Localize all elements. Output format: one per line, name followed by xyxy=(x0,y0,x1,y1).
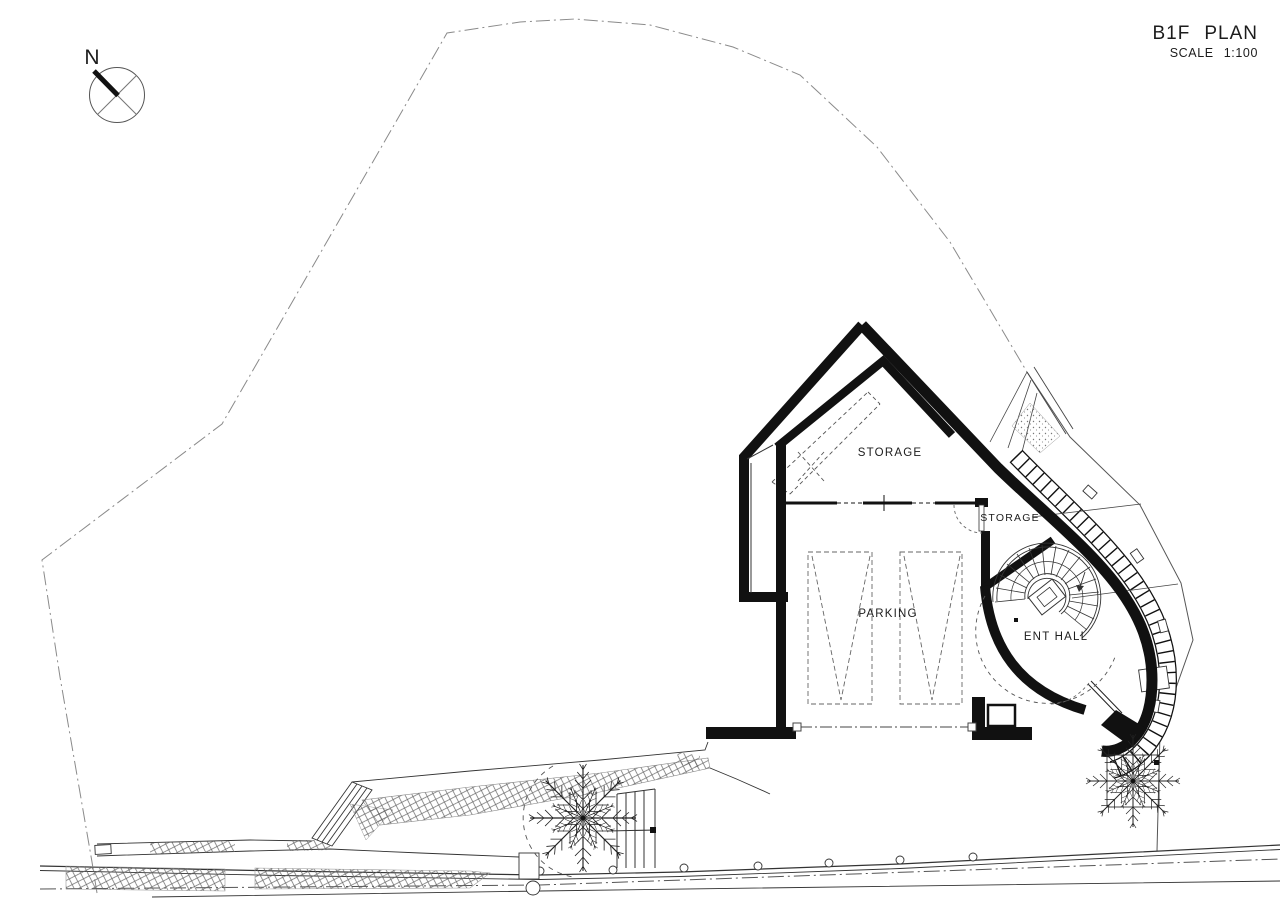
parking-bay-2 xyxy=(900,552,962,704)
path-landing xyxy=(519,853,539,879)
path-start-marker xyxy=(95,845,111,855)
wall-west-annex xyxy=(744,325,862,597)
footpath-hatch-1 xyxy=(150,841,235,854)
scale-label: SCALE xyxy=(1170,46,1214,60)
stair-direction-dot xyxy=(650,827,656,833)
landscape-southwest xyxy=(66,742,770,891)
stair-arrow-head xyxy=(1076,585,1084,592)
building xyxy=(706,325,1152,751)
scale-value: 1:100 xyxy=(1224,46,1258,60)
north-label: N xyxy=(84,46,99,69)
parking-bay-1 xyxy=(808,552,872,704)
retaining-tail-curve xyxy=(710,768,770,794)
wall-inner-chevron xyxy=(777,361,952,447)
road xyxy=(40,845,1280,897)
tree-icon xyxy=(1086,734,1180,828)
sheet-title-plan: PLAN xyxy=(1204,23,1258,44)
planter-tick xyxy=(1154,760,1159,765)
parking-label: PARKING xyxy=(858,608,917,620)
road-hatch-2 xyxy=(255,868,490,889)
tree-planter-east xyxy=(1086,734,1180,828)
north-needle xyxy=(94,71,118,96)
title-block: B1FPLAN SCALE1:100 xyxy=(1153,23,1259,60)
service-duct-box xyxy=(988,705,1015,726)
road-hatch-1 xyxy=(66,866,225,891)
exterior-stairs xyxy=(608,789,656,868)
floor-plan-drawing: STORAGE STORAGE PARKING ENT HALL N B1FPL… xyxy=(0,0,1280,904)
storage-main-label: STORAGE xyxy=(858,447,922,459)
closet-door-swing xyxy=(954,505,982,533)
manhole-large xyxy=(526,881,540,895)
wall-interior-horizontal xyxy=(786,495,983,511)
parking-bays xyxy=(808,552,962,704)
floor-plan-sheet: STORAGE STORAGE PARKING ENT HALL N B1FPL… xyxy=(0,0,1280,904)
retaining-hatch-band xyxy=(362,758,710,825)
stair-direction-line xyxy=(608,830,656,831)
garage-opening xyxy=(793,723,976,731)
sheet-title: B1FPLAN xyxy=(1153,23,1259,44)
north-arrow-icon: N xyxy=(84,46,144,123)
wall-south-west-bar xyxy=(706,727,796,739)
sheet-scale: SCALE1:100 xyxy=(1170,46,1258,60)
ent-hall-label: ENT HALL xyxy=(1024,631,1088,643)
stair-ref-dot xyxy=(1014,618,1018,622)
spiral-staircase xyxy=(993,543,1101,638)
storage-small-label: STORAGE xyxy=(980,512,1040,524)
wall-southeast-service xyxy=(972,697,1032,740)
stair-core xyxy=(1028,579,1065,615)
sheet-title-floor: B1F xyxy=(1153,23,1191,44)
room-labels: STORAGE STORAGE PARKING ENT HALL xyxy=(858,447,1088,643)
